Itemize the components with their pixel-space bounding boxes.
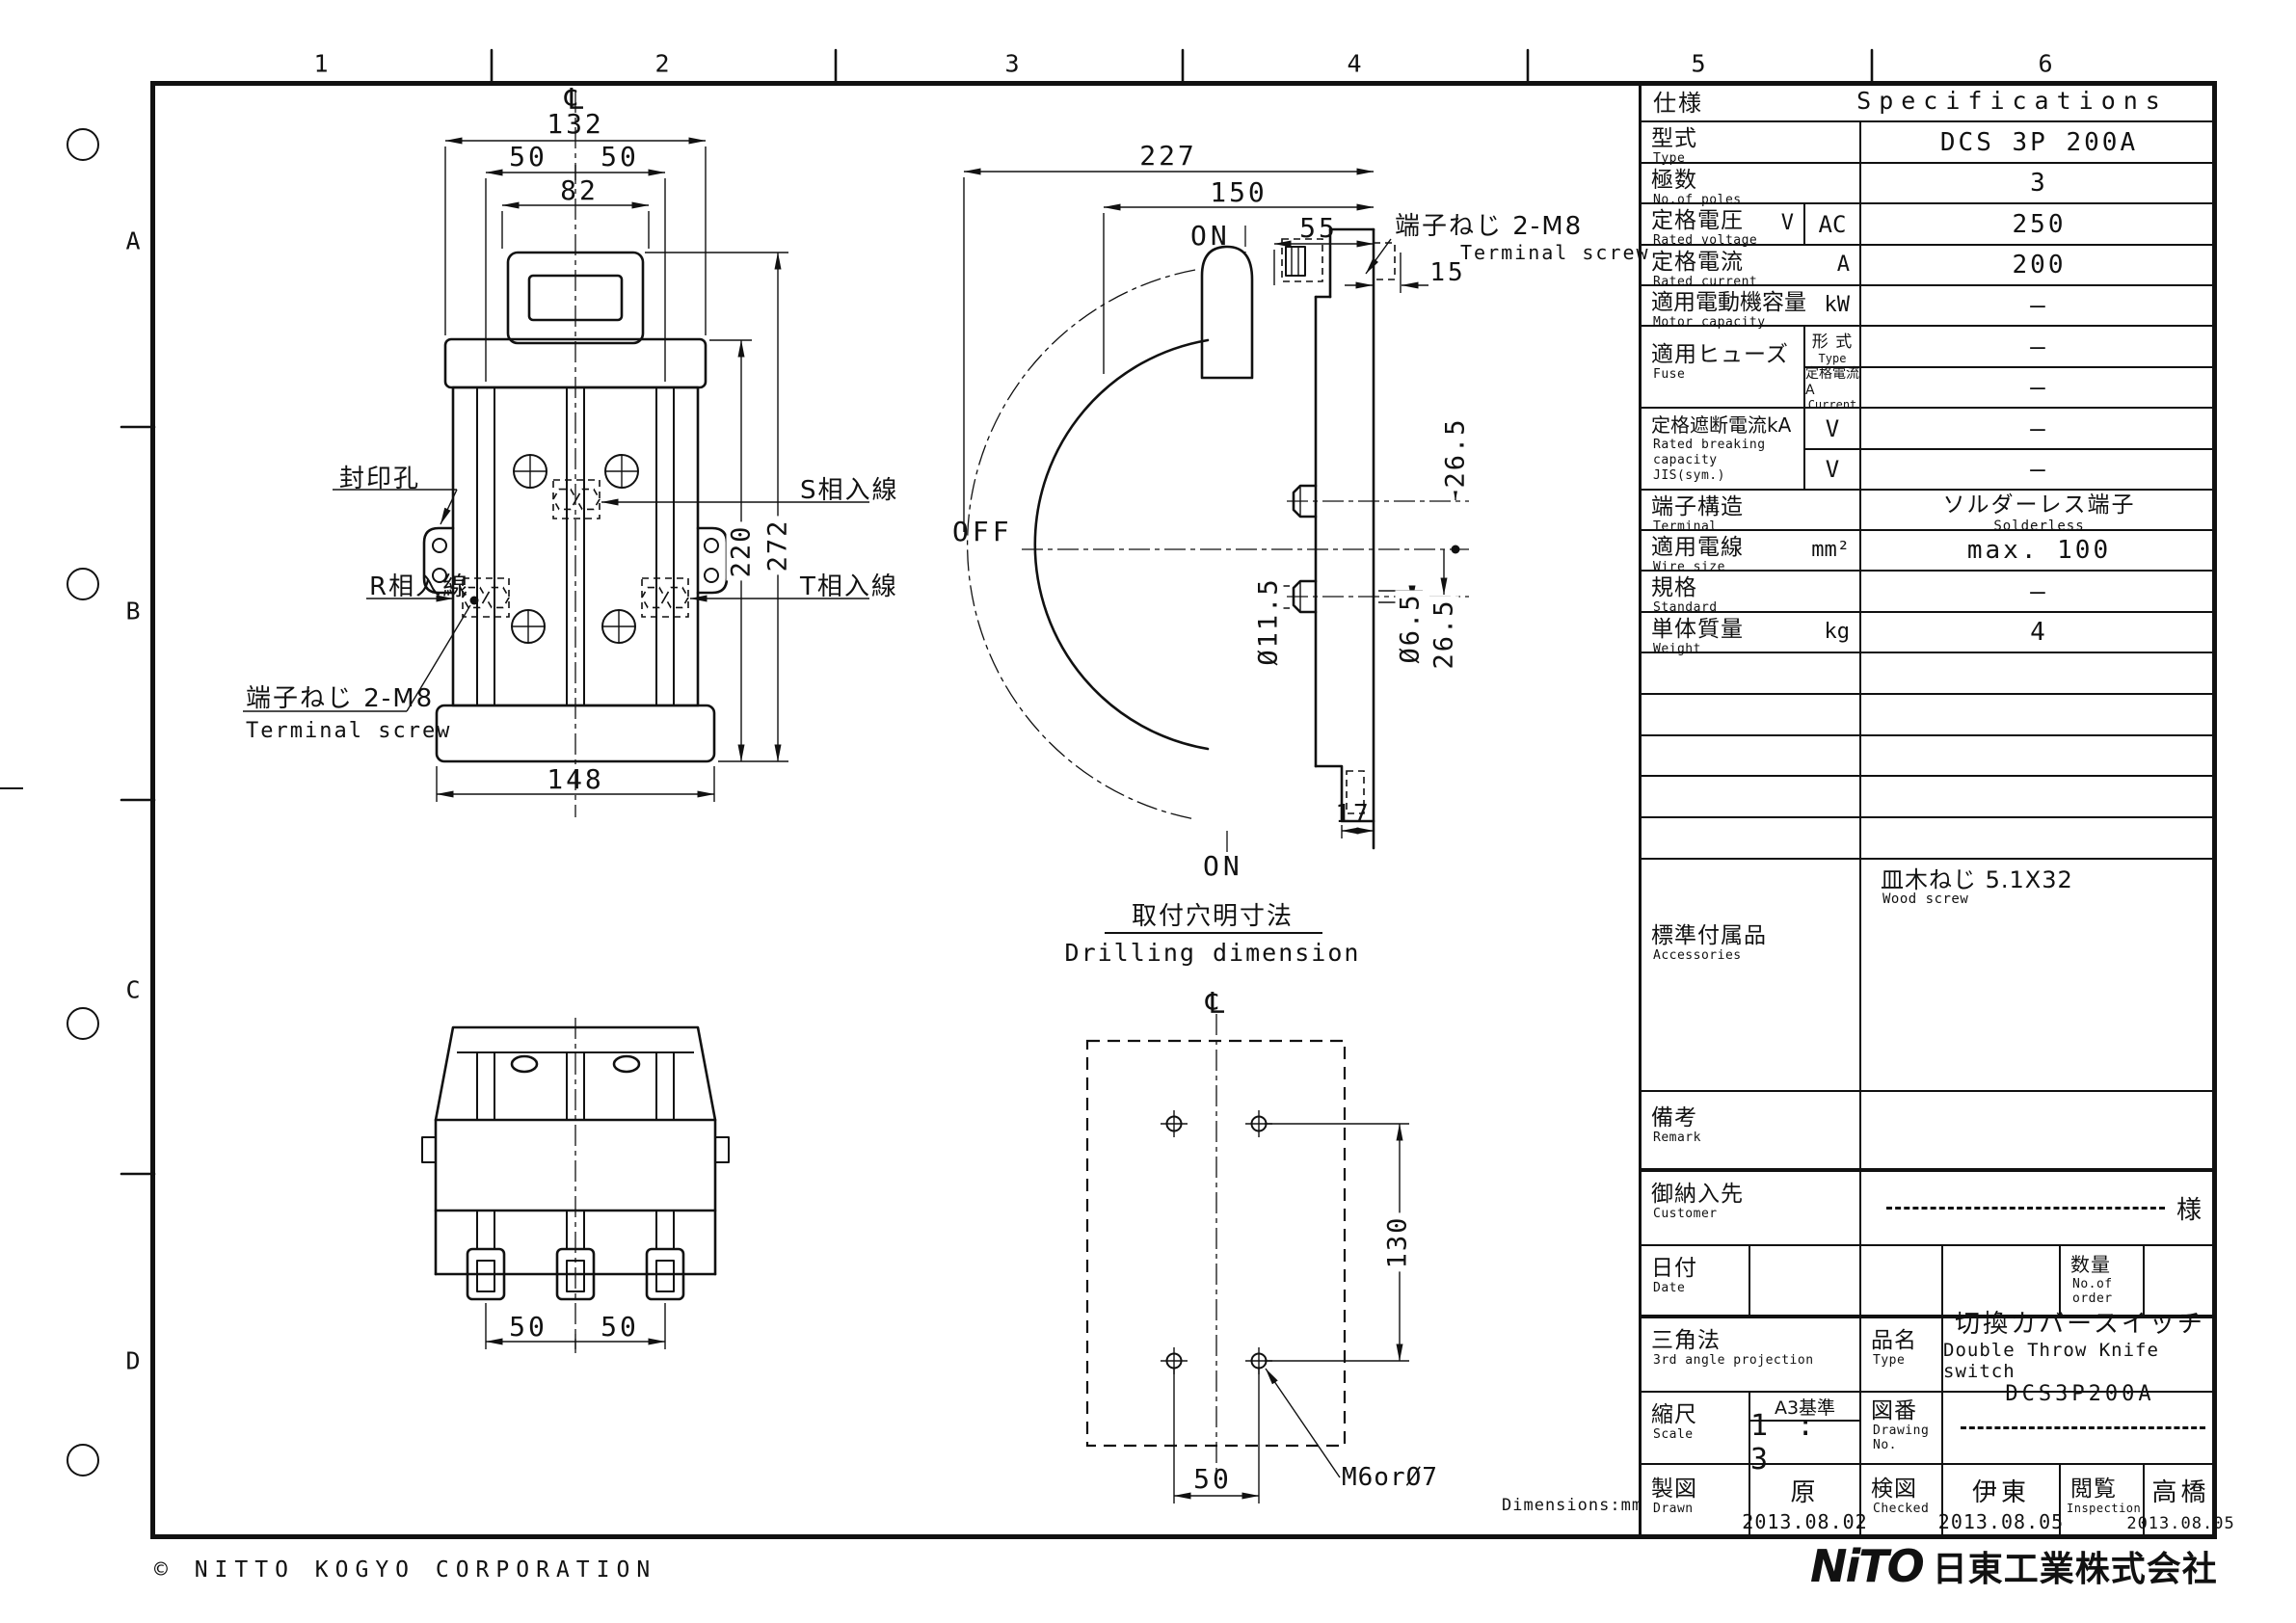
front-dim-50-right: 50 [601,141,639,173]
bottom-view [422,1018,729,1353]
front-label-t-phase: T相入線 [800,567,898,602]
scale-ratio: 1 : 3 [1750,1422,1859,1464]
label-jp: 閲覧 [2061,1465,2143,1502]
grid-col-4: 4 [1347,50,1361,78]
label-en: Scale [1642,1427,1749,1442]
spec-label-fuse: 適用ヒューズ Fuse [1642,327,1805,409]
front-label-r-phase: R相入線 [369,567,469,602]
value: 3 [2030,169,2048,198]
tb-label-drawn: 製図 Drawn [1642,1465,1750,1539]
label-jp: 数量 [2061,1246,2143,1277]
tb-drawing-no-value [1943,1393,2217,1465]
sub-jp: 定格電流A [1805,363,1859,398]
value-jp: 皿木ねじ 5.1X32 [1861,860,2217,892]
tb-value-customer: 様 [1861,1172,2217,1246]
value: 200 [2013,251,2067,279]
value: — [2030,291,2048,320]
tb-date-blank-2 [1861,1246,1943,1318]
spec-empty-label [1642,818,1861,860]
checked-date: 2013.08.05 [1938,1510,2064,1533]
spec-value-accessories: 皿木ねじ 5.1X32 Wood screw [1861,860,2217,1092]
label-jp: 日付 [1642,1246,1749,1281]
bottom-dim-50-right: 50 [601,1311,639,1343]
label-en: Customer [1642,1207,1859,1221]
front-dim-272: 272 [763,517,793,575]
front-label-seal-hole: 封印孔 [339,459,420,494]
sub-jp: 形 式 [1812,328,1853,352]
bottom-dim-50-left: 50 [509,1311,547,1343]
label-jp: 図番 [1861,1393,1941,1423]
label-jp: 定格電圧 [1642,204,1803,233]
side-dim-26-5-bottom: 26.5 [1429,596,1459,672]
value: — [2030,373,2048,402]
front-label-s-phase: S相入線 [800,470,899,506]
grid-col-5: 5 [1691,50,1705,78]
spec-empty-label [1642,777,1861,818]
tb-drawn-signature: 原 2013.08.02 [1750,1465,1861,1539]
value: — [2030,414,2048,443]
unit: mm² [1811,538,1850,562]
tb-checked-signature: 伊東 2013.08.05 [1943,1465,2061,1539]
label-jp: 三角法 [1642,1318,1859,1353]
spec-label-wire: 適用電線 Wire size mm² [1642,531,1861,572]
spec-label-breaking: 定格遮断電流kA Rated breaking capacity JIS(sym… [1642,409,1805,491]
company-logo: NiTO 日東工業株式会社 [1810,1540,2218,1592]
drill-title-en: Drilling dimension [1065,939,1361,967]
label-jp: 端子構造 [1642,491,1859,519]
grid-col-1: 1 [313,50,328,78]
spec-empty-label [1642,736,1861,777]
value-en: Wood screw [1861,892,2217,907]
grid-row-a: A [125,227,140,255]
spec-empty-value [1861,736,2217,777]
tb-label-name: 品名 Type [1861,1318,1943,1393]
label-en: 3rd angle projection [1642,1353,1859,1368]
inspection-name: 高橋 [2151,1473,2209,1508]
spec-label-current: 定格電流 Rated current A [1642,246,1861,286]
side-dim-dia-11-5: Ø11.5 [1254,574,1284,668]
side-label-on-top: ON [1190,220,1231,252]
dimensions-note: Dimensions:mm [1502,1496,1642,1515]
label-jp: 標準付属品 [1642,860,1859,948]
drill-centerline-symbol: ℄ [1206,987,1227,1021]
grid-row-c: C [125,976,140,1004]
spec-label-remark: 備考 Remark [1642,1092,1861,1172]
drawing-sheet: ℄ 132 50 50 82 220 272 148 封印孔 R相入線 S相入線… [0,0,2296,1623]
tb-label-drawing-no: 図番 Drawing No. [1861,1393,1943,1465]
value: — [2030,333,2048,361]
grid-col-3: 3 [1004,50,1019,78]
sub: AC [1819,211,1847,238]
spec-sub-fuse-current: 定格電流A Current [1805,368,1861,409]
spec-value-current: 200 [1861,246,2217,286]
copyright: © NITTO KOGYO CORPORATION [154,1557,656,1583]
label-jp: 定格遮断電流kA [1642,409,1803,438]
spec-value-breaking-1: — [1861,409,2217,450]
label-en: Checked [1861,1502,1941,1516]
unit: V [1781,211,1794,235]
spec-label-type: 型式 Type [1642,122,1861,164]
value: 4 [2030,618,2048,647]
spec-sub-breaking-1: V [1805,409,1861,450]
spec-sub-voltage-ac: AC [1805,204,1861,246]
tb-label-customer: 御納入先 Customer [1642,1172,1861,1246]
value: — [2030,455,2048,484]
spec-value-remark [1861,1092,2217,1172]
product-name-en: Double Throw Knife switch [1943,1340,2217,1382]
sub: V [1826,415,1839,442]
spec-sub-fuse-type: 形 式 Type [1805,327,1861,368]
tb-label-date: 日付 Date [1642,1246,1750,1318]
label-jp: 備考 [1642,1092,1859,1131]
label-jp: 御納入先 [1642,1172,1859,1207]
punch-hole [67,569,98,599]
grid-col-2: 2 [654,50,669,78]
drawn-name: 原 [1790,1473,1819,1508]
spec-empty-label [1642,653,1861,695]
unit: kW [1825,293,1851,317]
value: DCS 3P 200A [1940,128,2138,157]
front-label-terminal-screw-jp: 端子ねじ 2-M8 [246,678,434,714]
label-en: Drawn [1642,1502,1749,1516]
tb-inspection-signature: 高橋 2013.08.05 [2145,1465,2217,1539]
spec-value-motor: — [1861,286,2217,327]
spec-empty-value [1861,695,2217,736]
spec-value-breaking-2: — [1861,450,2217,491]
spec-value-terminal: ソルダーレス端子 Solderless [1861,491,2217,531]
label-jp: 検図 [1861,1465,1941,1502]
customer-dash-line [1886,1207,2165,1210]
label-en: Fuse [1642,367,1803,382]
front-dim-50-left: 50 [509,141,547,173]
grid-row-d: D [125,1347,140,1375]
side-dim-17: 17 [1335,800,1371,829]
handle-on [1202,247,1252,378]
spec-value-wire: max. 100 [1861,531,2217,572]
side-label-on-bottom: ON [1203,850,1243,882]
spec-label-standard: 規格 Standard [1642,572,1861,613]
tb-label-scale: 縮尺 Scale [1642,1393,1750,1465]
tb-scale-value: A3基準 1 : 3 [1750,1393,1861,1465]
spec-value-poles: 3 [1861,164,2217,204]
value-jp: ソルダーレス端子 [1943,486,2136,519]
spec-label-poles: 極数 No.of poles [1642,164,1861,204]
drill-view [1087,933,1409,1503]
customer-suffix: 様 [2176,1190,2202,1226]
spec-value-fuse-current: — [1861,368,2217,409]
unit: A [1837,253,1850,277]
spec-header-en: Specifications [1807,87,2217,115]
spec-empty-label [1642,695,1861,736]
tb-label-projection: 三角法 3rd angle projection [1642,1318,1861,1393]
spec-label-weight: 単体質量 Weight kg [1642,613,1861,653]
label-en: Date [1642,1281,1749,1295]
spec-label-voltage: 定格電圧 Rated voltage V [1642,204,1805,246]
unit: kg [1825,620,1851,644]
drawing-no-dash-line [1961,1426,2205,1429]
side-label-terminal-screw-en: Terminal screw [1460,241,1650,264]
value: — [2030,577,2048,606]
spec-header: 仕様 Specifications [1642,81,2217,122]
inspection-date: 2013.08.05 [2126,1514,2234,1533]
spec-sub-breaking-2: V [1805,450,1861,491]
label-en3: JIS(sym.) [1642,468,1803,484]
value: 250 [2013,210,2067,239]
label-jp: 品名 [1861,1318,1941,1353]
grid-row-b: B [125,598,140,625]
label-jp: 定格電流 [1642,246,1859,275]
tb-date-blank-1 [1750,1246,1861,1318]
logo-company-name: 日東工業株式会社 [1933,1541,2218,1591]
product-name-jp: 切換カバースイッチ [1955,1304,2205,1340]
label-jp: 型式 [1642,122,1859,151]
label-jp: 製図 [1642,1465,1749,1502]
label-en1: Drawing [1861,1423,1941,1438]
drill-label-hole: M6orØ7 [1342,1463,1438,1492]
side-dim-55: 55 [1299,212,1338,244]
punch-hole [67,1445,98,1476]
spec-header-jp: 仕様 [1642,84,1807,118]
label-en: Type [1861,1353,1941,1368]
drill-title-jp: 取付穴明寸法 [1132,896,1294,932]
drill-dim-130: 130 [1383,1213,1413,1272]
spec-label-terminal: 端子構造 Terminal [1642,491,1861,531]
spec-label-motor: 適用電動機容量 Motor capacity kW [1642,286,1861,327]
tb-label-checked: 検図 Checked [1861,1465,1943,1539]
label-en1: No.of [2061,1277,2143,1291]
spec-value-weight: 4 [1861,613,2217,653]
label-en: Accessories [1642,948,1859,963]
spec-value-standard: — [1861,572,2217,613]
value: max. 100 [1967,536,2111,565]
front-dim-132: 132 [547,108,604,140]
grid-col-6: 6 [2038,50,2052,78]
checked-name: 伊東 [1972,1473,2030,1508]
side-dim-26-5-top: 26.5 [1441,414,1471,491]
sub: V [1826,456,1839,483]
side-view [964,172,1469,854]
spec-value-fuse-type: — [1861,327,2217,368]
spec-table: 仕様 Specifications 型式 Type DCS 3P 200A 極数… [1639,81,2217,1539]
punch-hole [67,129,98,160]
label-jp: 規格 [1642,572,1859,600]
label-en2: No. [1861,1438,1941,1452]
label-jp: 適用ヒューズ [1642,327,1803,367]
spec-empty-value [1861,653,2217,695]
front-dim-148: 148 [547,763,604,795]
punch-hole [67,1008,98,1039]
label-en2: capacity [1642,453,1803,468]
logo-mark: NiTO [1810,1540,1923,1592]
front-dim-220: 220 [727,522,757,581]
spec-label-accessories: 標準付属品 Accessories [1642,860,1861,1092]
tb-product-name: 切換カバースイッチ Double Throw Knife switch DCS3… [1943,1318,2217,1393]
label-jp: 縮尺 [1642,1393,1749,1427]
side-label-off: OFF [952,516,1013,547]
side-dim-dia-6-5: Ø6.5 [1396,590,1426,666]
side-label-terminal-screw-jp: 端子ねじ 2-M8 [1395,206,1583,242]
spec-value-voltage: 250 [1861,204,2217,246]
spec-empty-value [1861,818,2217,860]
drawn-date: 2013.08.02 [1742,1510,1867,1533]
drill-dim-50: 50 [1193,1463,1232,1495]
front-label-terminal-screw-en: Terminal screw [246,719,451,743]
label-en1: Rated breaking [1642,438,1803,453]
spec-empty-value [1861,777,2217,818]
side-dim-150: 150 [1210,176,1268,208]
spec-value-type: DCS 3P 200A [1861,122,2217,164]
label-jp: 極数 [1642,164,1859,193]
side-dim-227: 227 [1139,140,1197,172]
front-dim-82: 82 [560,174,599,206]
label-en: Remark [1642,1131,1859,1145]
